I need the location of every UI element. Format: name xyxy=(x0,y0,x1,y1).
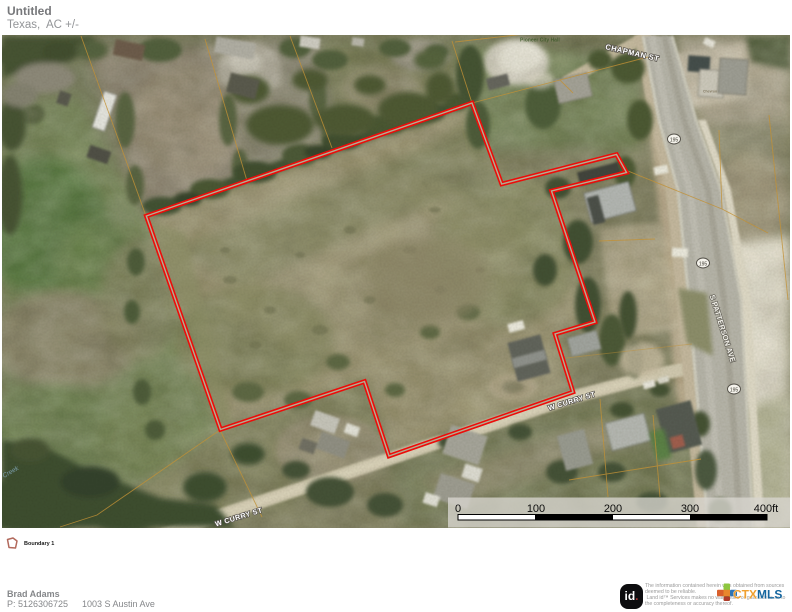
svg-text:200: 200 xyxy=(604,503,622,515)
svg-text:300: 300 xyxy=(681,503,699,515)
svg-text:195: 195 xyxy=(670,138,679,144)
svg-text:195: 195 xyxy=(730,388,739,394)
svg-text:400ft: 400ft xyxy=(754,503,778,515)
svg-text:CTX: CTX xyxy=(733,588,757,602)
svg-text:MLS: MLS xyxy=(757,588,782,602)
svg-text:0: 0 xyxy=(455,503,461,515)
svg-text:195: 195 xyxy=(699,262,708,268)
svg-text:100: 100 xyxy=(527,503,545,515)
svg-text:Pioneer City Hall: Pioneer City Hall xyxy=(520,38,560,44)
